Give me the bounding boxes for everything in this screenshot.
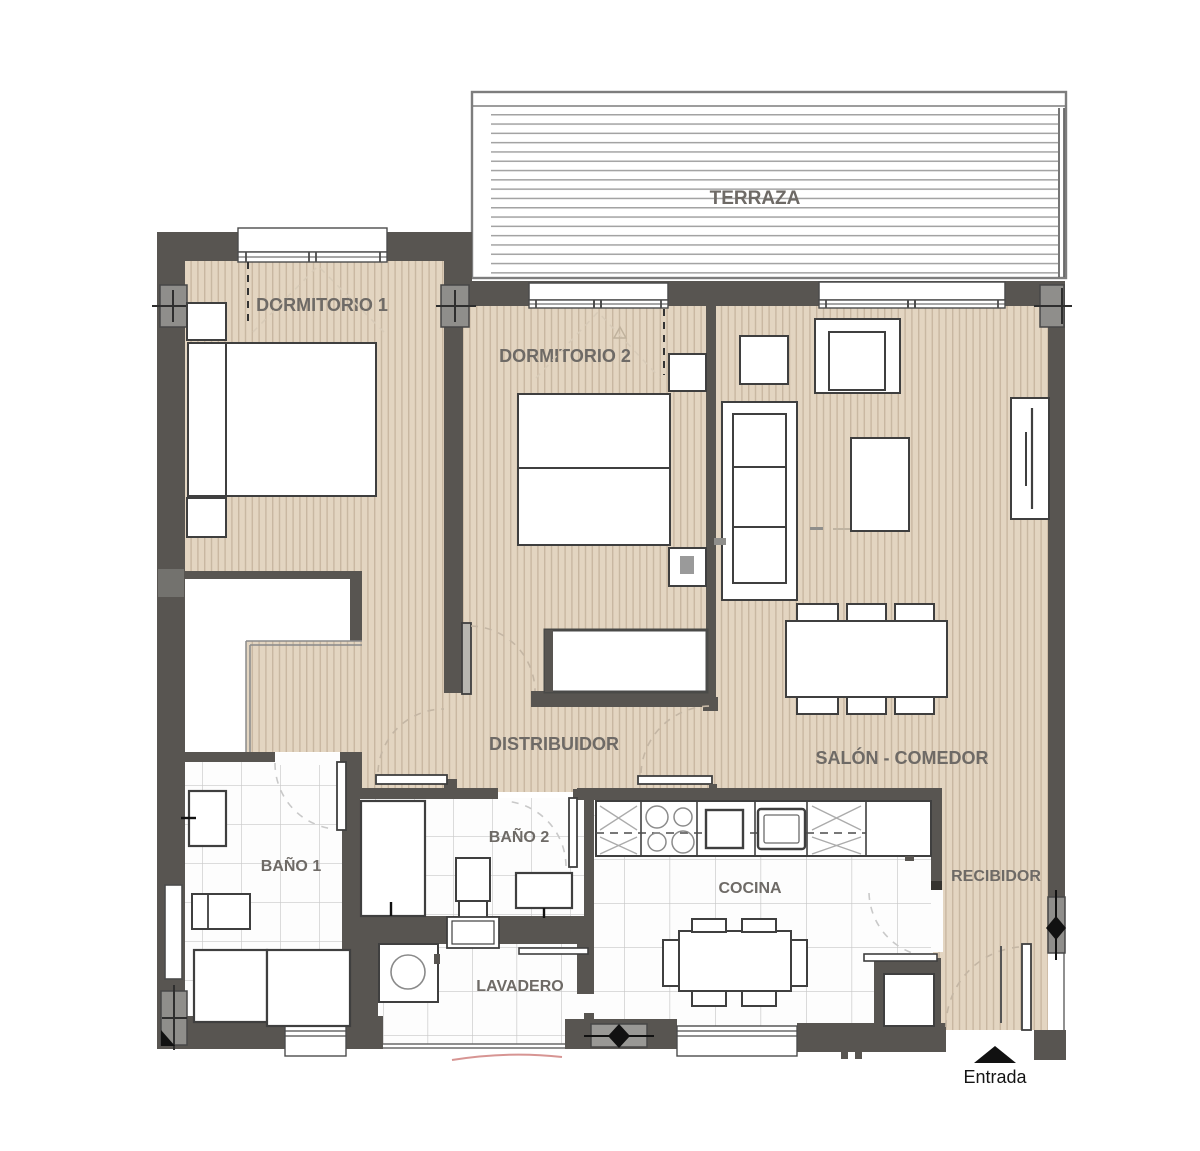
svg-text:BAÑO 1: BAÑO 1 — [261, 855, 322, 875]
svg-text:LAVADERO: LAVADERO — [476, 978, 563, 995]
svg-text:DORMITORIO 1: DORMITORIO 1 — [256, 295, 388, 315]
svg-text:SALÓN - COMEDOR: SALÓN - COMEDOR — [816, 747, 989, 768]
svg-text:DISTRIBUIDOR: DISTRIBUIDOR — [489, 734, 619, 754]
svg-text:COCINA: COCINA — [718, 880, 782, 897]
svg-text:Entrada: Entrada — [963, 1067, 1027, 1087]
svg-text:TERRAZA: TERRAZA — [710, 188, 801, 209]
svg-text:RECIBIDOR: RECIBIDOR — [951, 868, 1041, 885]
svg-text:BAÑO 2: BAÑO 2 — [489, 826, 550, 846]
svg-text:DORMITORIO 2: DORMITORIO 2 — [499, 346, 631, 366]
